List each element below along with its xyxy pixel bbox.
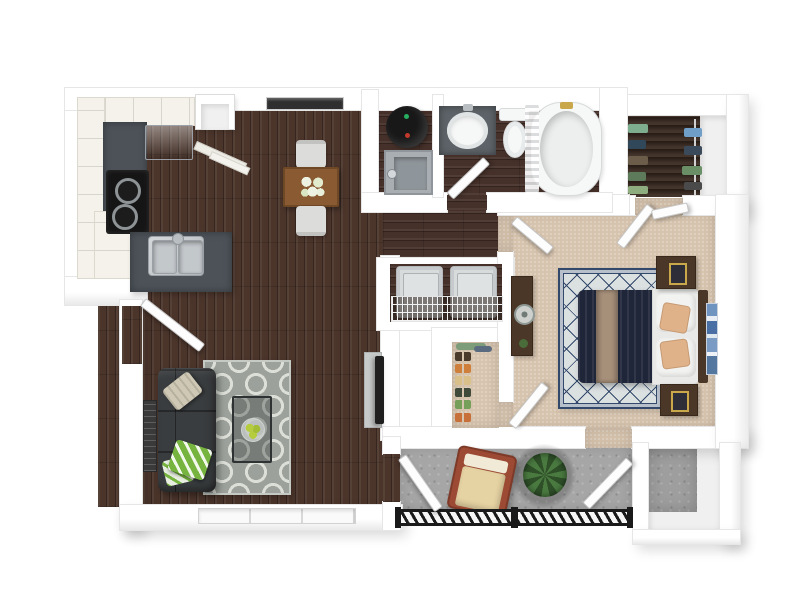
flower-centerpiece <box>298 174 326 200</box>
shoe-pair <box>455 413 471 422</box>
drain-pan <box>384 150 433 195</box>
wall-storage-right <box>720 443 740 543</box>
faucet-icon <box>172 233 184 245</box>
coffee-table <box>232 396 272 463</box>
potted-plant <box>523 453 567 497</box>
hanging-clothes <box>628 172 646 181</box>
television <box>375 356 384 424</box>
fruit-bowl <box>241 418 265 442</box>
dining-chair <box>296 140 326 168</box>
dining-chair <box>296 206 326 236</box>
wall-bath-bottom-b <box>487 193 612 212</box>
wall-dining-utility-divider <box>362 90 378 196</box>
living-window <box>198 508 356 524</box>
sofa <box>158 368 216 492</box>
dining-table <box>283 167 339 207</box>
wall-bedroom-right <box>716 195 748 448</box>
heater-valve-red <box>405 133 410 138</box>
sink-bowl <box>178 240 203 274</box>
throw-pillow-tan <box>161 371 203 412</box>
picture-frame <box>671 391 689 412</box>
bathtub <box>531 102 602 196</box>
floor-patio-storage <box>648 443 697 512</box>
round-mirror <box>514 304 535 325</box>
entry-threshold <box>122 306 142 364</box>
vanity <box>439 106 496 155</box>
nightstand <box>656 256 696 289</box>
floor-plan <box>0 0 800 600</box>
hanging-clothes <box>628 186 648 194</box>
burner-icon <box>115 178 141 204</box>
hanging-clothes <box>628 124 648 133</box>
burner-icon <box>112 204 138 230</box>
pan-inner <box>394 157 427 190</box>
railing-post <box>395 507 401 528</box>
vanity-sink <box>447 112 488 149</box>
dresser <box>511 276 533 356</box>
shoe-pair <box>455 376 471 385</box>
wall-patio-left-a <box>383 437 400 454</box>
shower-curtain <box>525 102 539 196</box>
pantry-interior <box>201 104 229 130</box>
hanging-clothes <box>628 140 646 149</box>
small-plant-icon <box>519 339 528 348</box>
living-patio-doorway <box>383 454 400 502</box>
accent-pillow <box>659 302 691 334</box>
floor-hallway <box>383 208 500 258</box>
railing-post <box>511 507 518 528</box>
tub-basin <box>540 111 593 187</box>
accent-pillow <box>659 338 691 370</box>
wall-storage-bottom <box>633 530 740 544</box>
hanging-clothes <box>628 156 648 165</box>
bedroom-patio-doorway <box>585 429 632 448</box>
hanging-clothes <box>682 166 702 175</box>
water-heater <box>386 106 428 148</box>
hanging-clothes <box>474 346 492 352</box>
faucet-icon <box>463 104 473 111</box>
queen-bed <box>578 288 708 385</box>
toilet-bowl <box>503 121 527 158</box>
kitchen-sink <box>148 236 204 276</box>
shoe-pair <box>455 388 471 397</box>
hanging-clothes <box>684 128 702 137</box>
refrigerator <box>145 125 193 160</box>
wall-storage-left <box>633 443 648 543</box>
shoe-pair <box>455 364 471 373</box>
throw-blanket <box>596 290 618 383</box>
chair-cushion <box>455 466 506 514</box>
wall-art <box>143 400 157 472</box>
shoe-pair <box>455 352 471 361</box>
dining-window <box>266 97 344 110</box>
wire-shelf <box>391 296 503 322</box>
wardrobe-inner-wall <box>700 116 727 197</box>
sink-bowl <box>152 240 177 274</box>
blue-wall-art <box>706 303 718 375</box>
shoe-pair <box>455 400 471 409</box>
tub-faucet-icon <box>560 102 573 109</box>
hanging-clothes <box>684 182 702 190</box>
picture-frame <box>669 263 687 285</box>
range-stove <box>106 170 149 234</box>
bedroom-doorway <box>498 216 513 252</box>
nightstand <box>660 384 698 416</box>
drain-icon <box>387 169 397 179</box>
hanging-clothes <box>684 146 702 155</box>
heater-valve-green <box>404 114 409 119</box>
railing-post <box>627 507 633 528</box>
